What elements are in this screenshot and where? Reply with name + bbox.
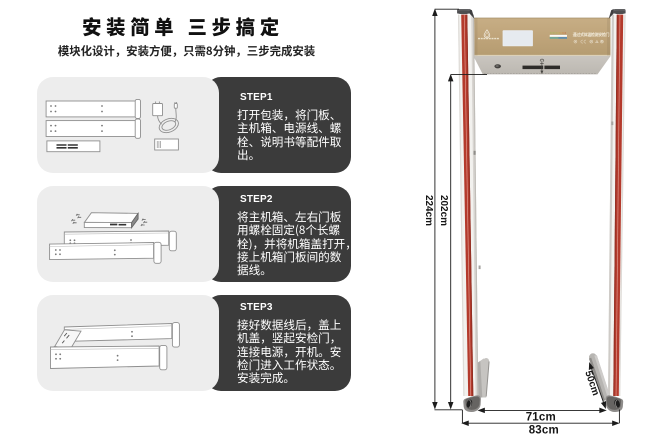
svg-text:202cm: 202cm	[438, 195, 449, 226]
svg-text:83cm: 83cm	[529, 424, 559, 436]
svg-text:71cm: 71cm	[526, 412, 556, 424]
svg-text:通过式体温检测安检门: 通过式体温检测安检门	[573, 32, 610, 38]
svg-text:224cm: 224cm	[425, 195, 434, 226]
